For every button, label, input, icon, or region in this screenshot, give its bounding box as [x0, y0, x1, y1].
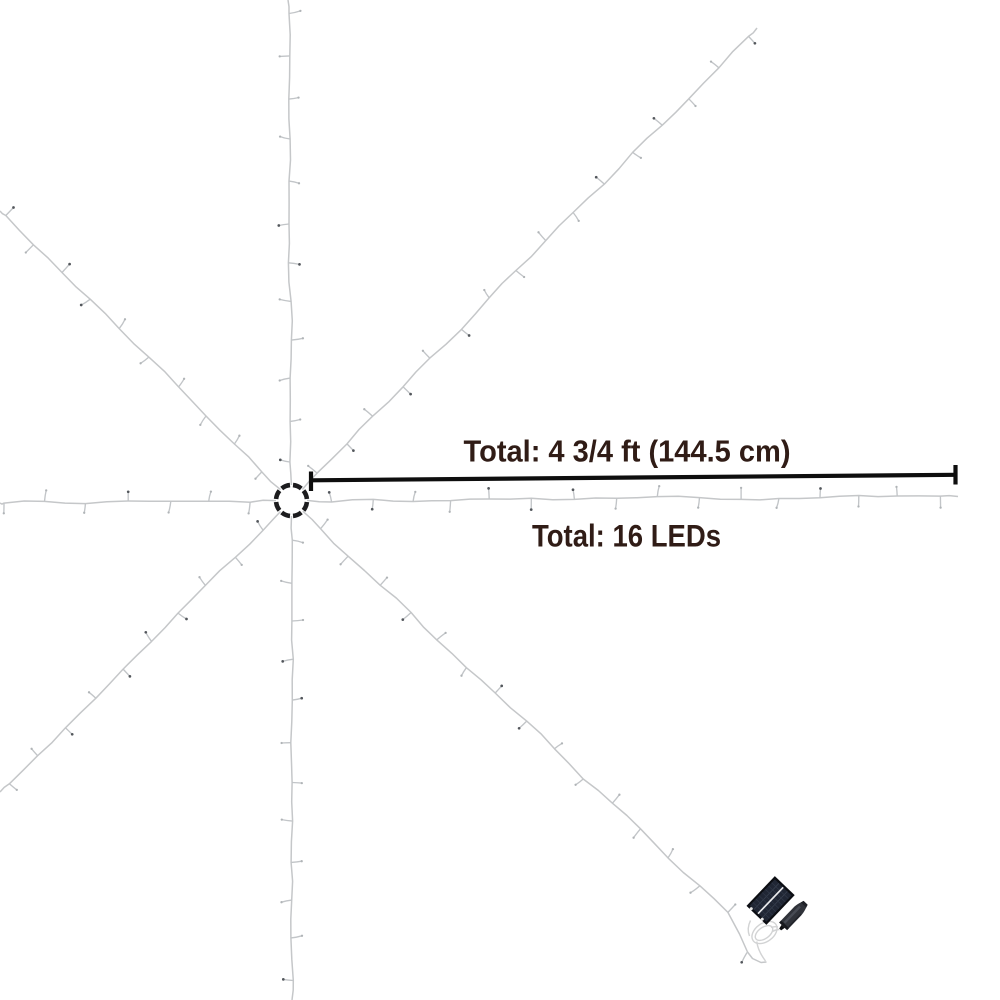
svg-text:Total: 4 3/4 ft (144.5 cm): Total: 4 3/4 ft (144.5 cm): [464, 435, 791, 469]
svg-text:Total: 16 LEDs: Total: 16 LEDs: [532, 519, 721, 554]
